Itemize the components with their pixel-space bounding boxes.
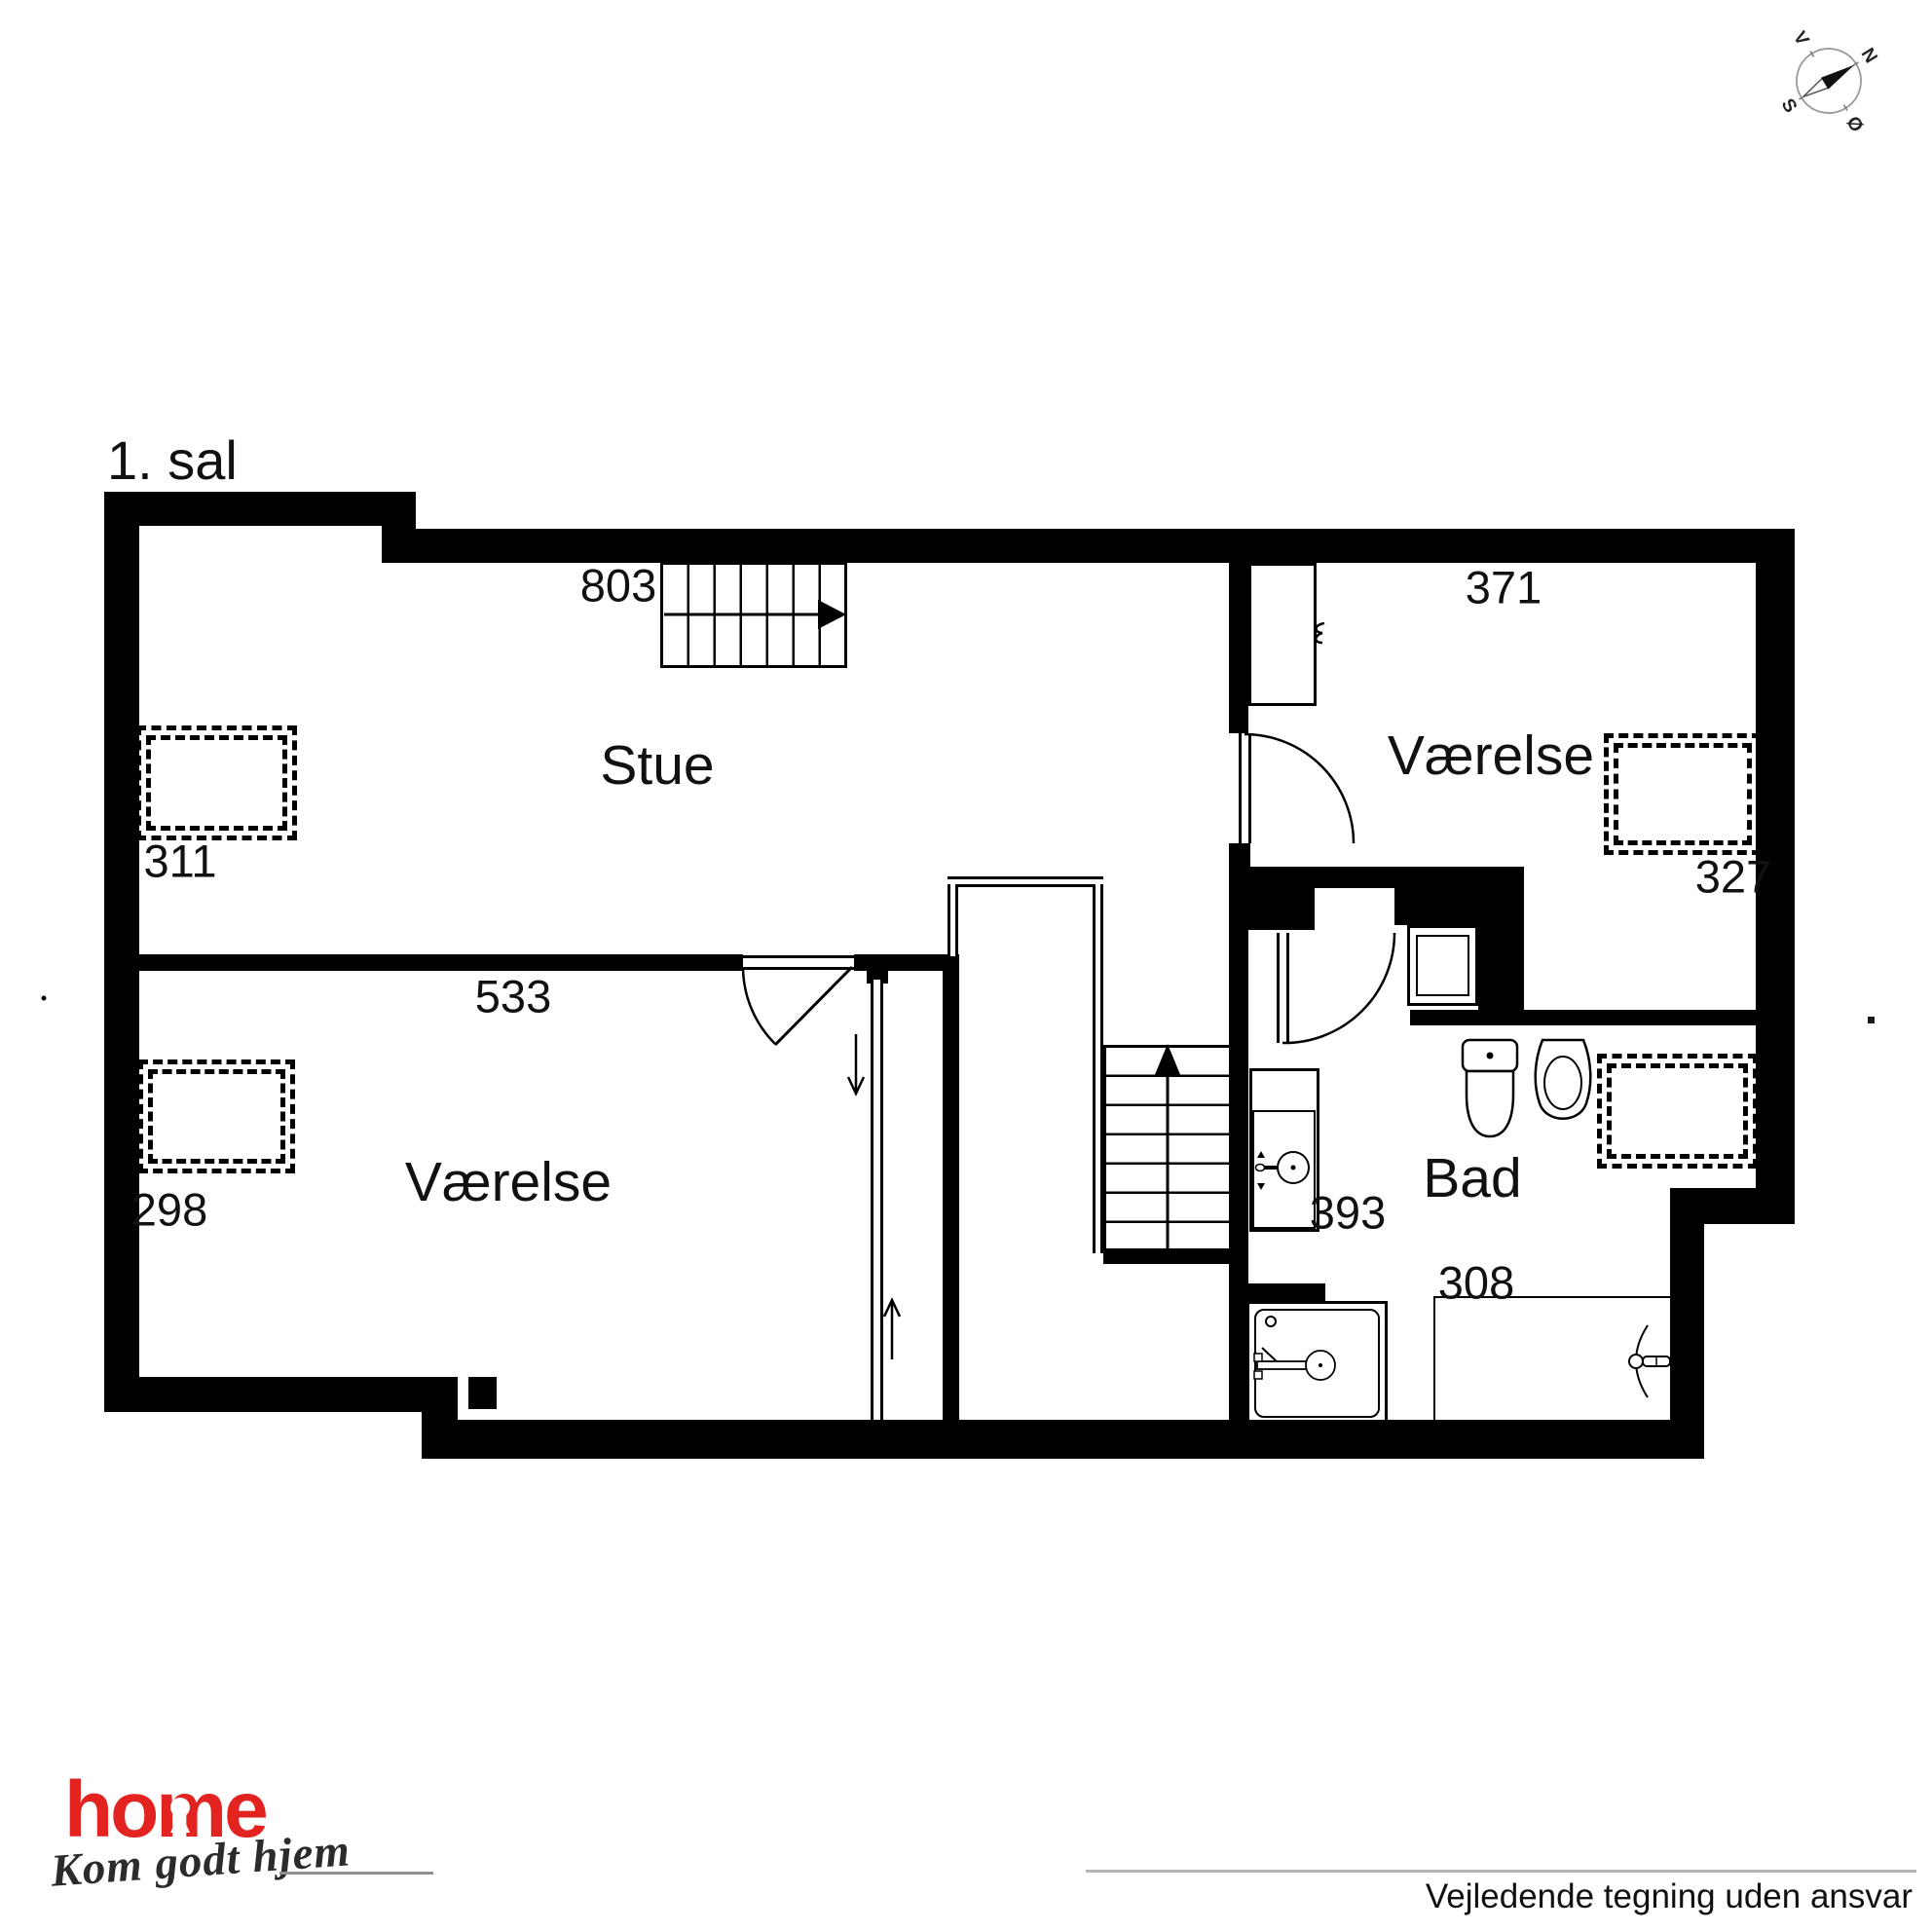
compass-needle-north <box>1821 59 1858 90</box>
door-arc <box>1245 734 1354 843</box>
wall-segment <box>1229 843 1250 867</box>
compass-icon: N S V Ø <box>1750 2 1908 160</box>
dimension-label: 311 <box>144 835 217 888</box>
room-label-right: Værelse <box>1388 724 1594 788</box>
staircase-main <box>1103 1045 1232 1251</box>
wardrobe-cabinet <box>1248 563 1317 706</box>
room-label-bath: Bad <box>1423 1146 1521 1210</box>
door-frame <box>743 955 854 970</box>
wall-segment <box>104 1377 458 1412</box>
door-arc <box>743 967 775 1044</box>
wall-segment <box>422 1420 1704 1459</box>
compass-letter-south: S <box>1777 95 1802 117</box>
column-post <box>468 1377 497 1409</box>
dashed-zone <box>1604 733 1762 855</box>
dimension-label: 308 <box>1438 1256 1514 1310</box>
wall-segment <box>139 954 743 971</box>
door-arc <box>1282 933 1394 1043</box>
stairwell-void-edge <box>947 884 958 956</box>
dimension-label: 533 <box>475 970 551 1023</box>
dimension-label: 803 <box>580 559 656 613</box>
toilet-cistern <box>1463 1040 1517 1071</box>
washbasin-bowl <box>1252 1110 1316 1229</box>
plan-dot <box>42 996 47 1001</box>
toilet-button <box>1487 1053 1494 1059</box>
floor-title: 1. sal <box>107 428 238 492</box>
wall-segment <box>1394 867 1524 925</box>
wall-segment <box>1103 1251 1234 1264</box>
washing-machine-door <box>1416 935 1469 996</box>
toilet-bowl <box>1467 1071 1513 1136</box>
up-arrow <box>884 1300 900 1359</box>
wall-segment <box>422 1412 458 1459</box>
shower-tray-inner <box>1254 1309 1380 1418</box>
bathtub <box>1433 1296 1672 1426</box>
wall-segment <box>1410 1010 1758 1025</box>
cabinet-hook <box>1316 623 1324 643</box>
wall-segment <box>1229 930 1248 1422</box>
disclaimer-text: Vejledende tegning uden ansvar <box>1426 1877 1913 1916</box>
wall-segment <box>943 954 959 1422</box>
dashed-zone <box>1597 1054 1758 1169</box>
plan-dot <box>1868 1017 1875 1023</box>
compass-letter-west: V <box>1789 28 1813 50</box>
dashed-zone <box>138 1059 295 1173</box>
door-leaf <box>1277 933 1289 1043</box>
stairwell-void-edge <box>1093 884 1103 1253</box>
wall-segment <box>104 492 139 1412</box>
dimension-label: 327 <box>1695 850 1771 904</box>
tagline-rule <box>279 1872 433 1875</box>
wall-segment <box>1229 563 1248 733</box>
bidet-outline <box>1536 1040 1591 1119</box>
staircase-upper <box>660 562 847 668</box>
footer-rule <box>1086 1870 1916 1873</box>
bidet-bowl <box>1544 1057 1581 1109</box>
wall-segment <box>382 492 416 563</box>
dimension-label: 393 <box>1310 1186 1386 1240</box>
door-leaf <box>1239 733 1251 843</box>
dashed-zone <box>136 725 297 840</box>
compass-letter-north: N <box>1857 45 1881 67</box>
room-label-living: Stue <box>600 733 714 798</box>
dimension-label: 298 <box>131 1183 207 1237</box>
compass-needle-south <box>1801 78 1830 102</box>
compass-letter-east: Ø <box>1841 113 1867 136</box>
floor-plan-page: 1. sal <box>0 0 1932 1932</box>
dimension-label: 371 <box>1466 561 1542 614</box>
wall-segment <box>1670 1188 1704 1459</box>
sliding-partition <box>871 980 883 1420</box>
stairwell-void-edge <box>947 876 1103 887</box>
door-leaf <box>775 967 852 1045</box>
wall-segment <box>1246 1283 1325 1301</box>
room-label-left: Værelse <box>405 1150 612 1214</box>
wall-segment <box>104 492 416 526</box>
down-arrow <box>848 1034 864 1094</box>
